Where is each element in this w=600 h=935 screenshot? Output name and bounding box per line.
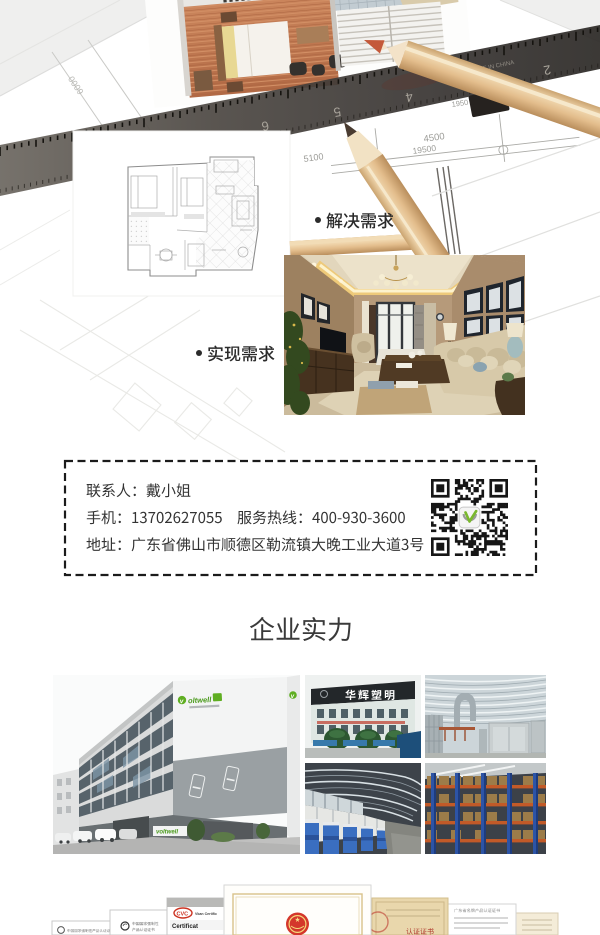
svg-text:Vkan Certific: Vkan Certific — [195, 912, 217, 916]
svg-text:voltwell: voltwell — [156, 830, 178, 836]
svg-text:CVC: CVC — [177, 912, 189, 918]
svg-text:Certificat: Certificat — [172, 924, 198, 930]
svg-text:oltwell: oltwell — [188, 695, 213, 705]
